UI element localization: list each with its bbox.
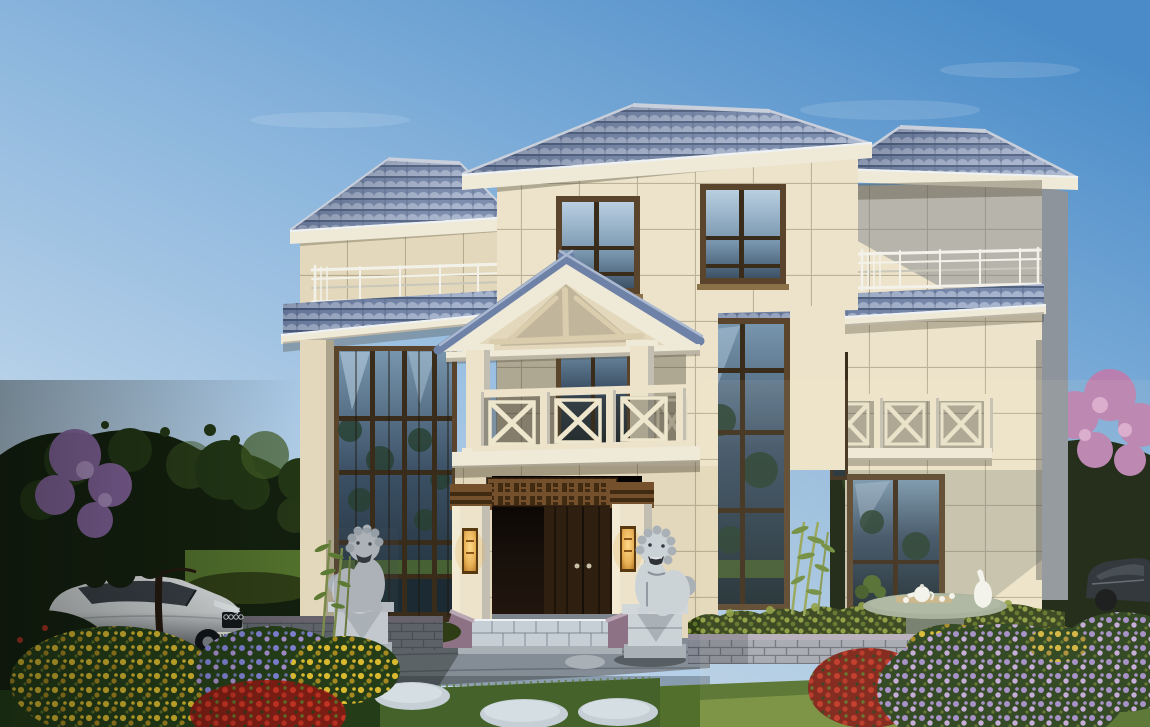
scene-canvas — [0, 0, 1150, 727]
third-floor-window-right — [697, 184, 789, 290]
lattice-frieze — [487, 478, 617, 506]
warm-light-right — [700, 380, 1150, 727]
door-handle-right — [587, 564, 592, 569]
villa-rendering — [0, 0, 1150, 727]
shade-overlay-left — [0, 380, 300, 727]
door-handle-left — [575, 564, 580, 569]
entry-door — [544, 498, 622, 626]
